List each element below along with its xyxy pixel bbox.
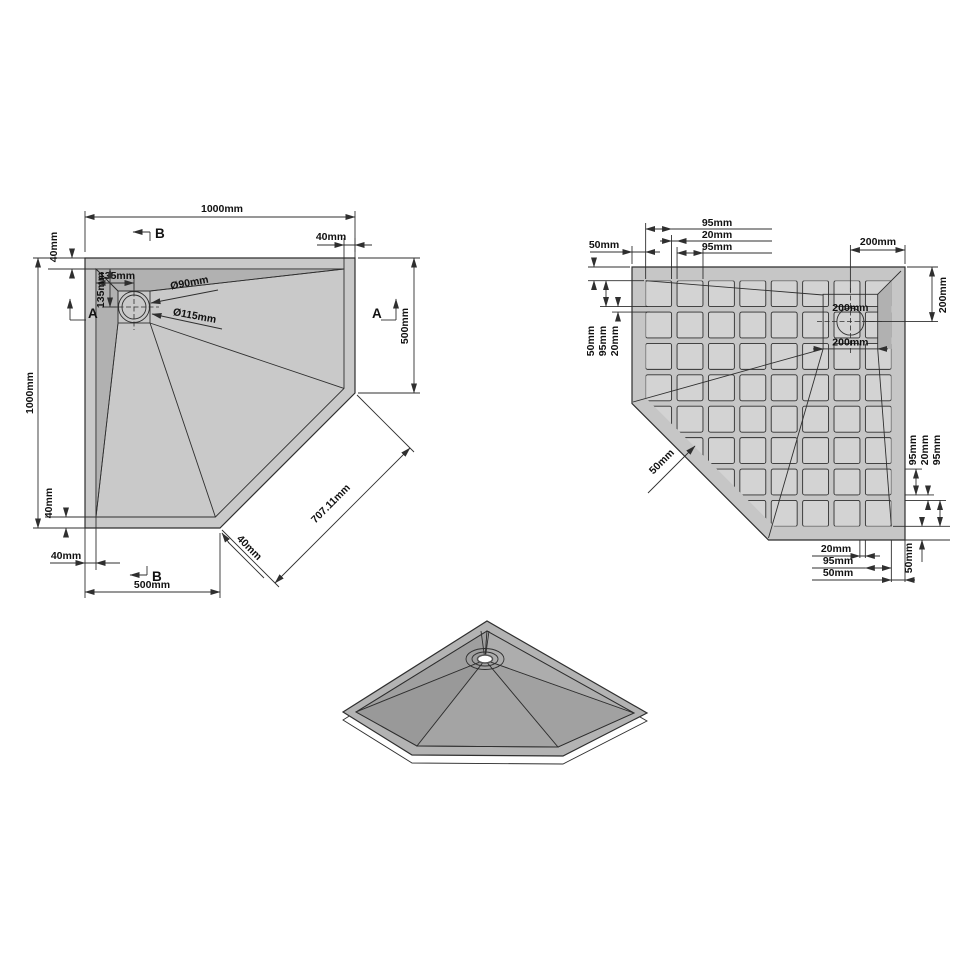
dim-label: 95mm	[823, 555, 853, 567]
dim-label: 50mm	[589, 239, 619, 251]
grid-cell	[740, 469, 766, 495]
dim-label: 40mm	[48, 232, 60, 262]
grid-cell	[740, 438, 766, 464]
dim-label: 20mm	[609, 326, 621, 356]
dim-label: 50mm	[647, 447, 677, 477]
grid-cell	[708, 375, 734, 401]
grid-cell	[803, 406, 829, 432]
dim-label: 200mm	[860, 236, 896, 248]
grid-cell	[803, 438, 829, 464]
grid-cell	[865, 500, 891, 526]
ext-line	[357, 395, 414, 452]
grid-cell	[771, 469, 797, 495]
grid-cell	[740, 343, 766, 369]
grid-cell	[865, 406, 891, 432]
grid-cell	[708, 500, 734, 526]
grid-cell	[834, 438, 860, 464]
grid-cell	[677, 500, 703, 526]
dim-label: 20mm	[821, 543, 851, 555]
dim-707	[275, 448, 410, 583]
grid-cell	[771, 406, 797, 432]
grid-cell	[834, 406, 860, 432]
grid-cell	[708, 343, 734, 369]
grid-cell	[646, 343, 672, 369]
dim-label: 1000mm	[24, 372, 36, 414]
ext-line	[222, 530, 279, 587]
grid-cell	[865, 375, 891, 401]
dim-label: 95mm	[931, 435, 943, 465]
grid-cell	[740, 375, 766, 401]
grid-cell	[803, 500, 829, 526]
dim-label: 200mm	[832, 337, 868, 349]
iso-view	[343, 621, 647, 764]
grid-cell	[677, 375, 703, 401]
grid-cell	[677, 312, 703, 338]
dim-label: 500mm	[134, 579, 170, 591]
grid-cell	[646, 500, 672, 526]
bottom-view: 200mm 200mm 50mm 95mm 20mm 95mm 200mm 20…	[585, 217, 950, 582]
grid-cell	[771, 281, 797, 307]
dim-label: 1000mm	[201, 203, 243, 215]
grid-cell	[803, 469, 829, 495]
drawing-sheet: Ø90mm Ø115mm 135mm 135mm 1000mm B 40mm 4…	[0, 0, 970, 970]
dim-label: 50mm	[585, 326, 597, 356]
grid-cell	[646, 281, 672, 307]
grid-cell	[646, 375, 672, 401]
grid-cell	[803, 312, 829, 338]
grid-cell	[771, 375, 797, 401]
dim-arrow	[222, 533, 229, 543]
grid-cell	[708, 281, 734, 307]
dim-label: 95mm	[702, 217, 732, 229]
dim-label: 40mm	[43, 488, 55, 518]
dim-label: 707.11mm	[309, 482, 353, 526]
dim-label: 135mm	[95, 272, 107, 308]
section-a-label: A	[372, 306, 382, 321]
dim-label: 200mm	[832, 302, 868, 314]
technical-drawing: Ø90mm Ø115mm 135mm 135mm 1000mm B 40mm 4…	[0, 0, 970, 970]
grid-cell	[771, 312, 797, 338]
grid-cell	[834, 469, 860, 495]
grid-cell	[677, 469, 703, 495]
grid-cell	[677, 406, 703, 432]
grid-cell	[646, 312, 672, 338]
grid-cell	[865, 438, 891, 464]
grid-cell	[677, 343, 703, 369]
grid-cell	[740, 312, 766, 338]
dim-label: 500mm	[399, 308, 411, 344]
dim-label: 95mm	[907, 435, 919, 465]
dim-label: 95mm	[597, 326, 609, 356]
section-a-label: A	[88, 306, 98, 321]
grid-cell	[771, 343, 797, 369]
dim-label: 40mm	[316, 231, 346, 243]
dim-label: 20mm	[702, 229, 732, 241]
section-b-label: B	[155, 226, 165, 241]
dim-label: 95mm	[702, 241, 732, 253]
grid-cell	[740, 281, 766, 307]
dim-label: 40mm	[51, 550, 81, 562]
dim-label: 40mm	[234, 533, 264, 563]
grid-cell	[834, 375, 860, 401]
grid-cell	[740, 406, 766, 432]
iso-drain-hole	[478, 655, 493, 663]
grid-cell	[771, 500, 797, 526]
dim-label: 50mm	[823, 567, 853, 579]
grid-cell	[803, 375, 829, 401]
grid-cell	[708, 312, 734, 338]
dim-label: 200mm	[937, 277, 949, 313]
grid-cell	[708, 406, 734, 432]
grid-cell	[834, 500, 860, 526]
plan-view: Ø90mm Ø115mm 135mm 135mm 1000mm B 40mm 4…	[24, 203, 420, 598]
grid-cell	[708, 438, 734, 464]
dim-label: 20mm	[919, 435, 931, 465]
grid-cell	[803, 343, 829, 369]
